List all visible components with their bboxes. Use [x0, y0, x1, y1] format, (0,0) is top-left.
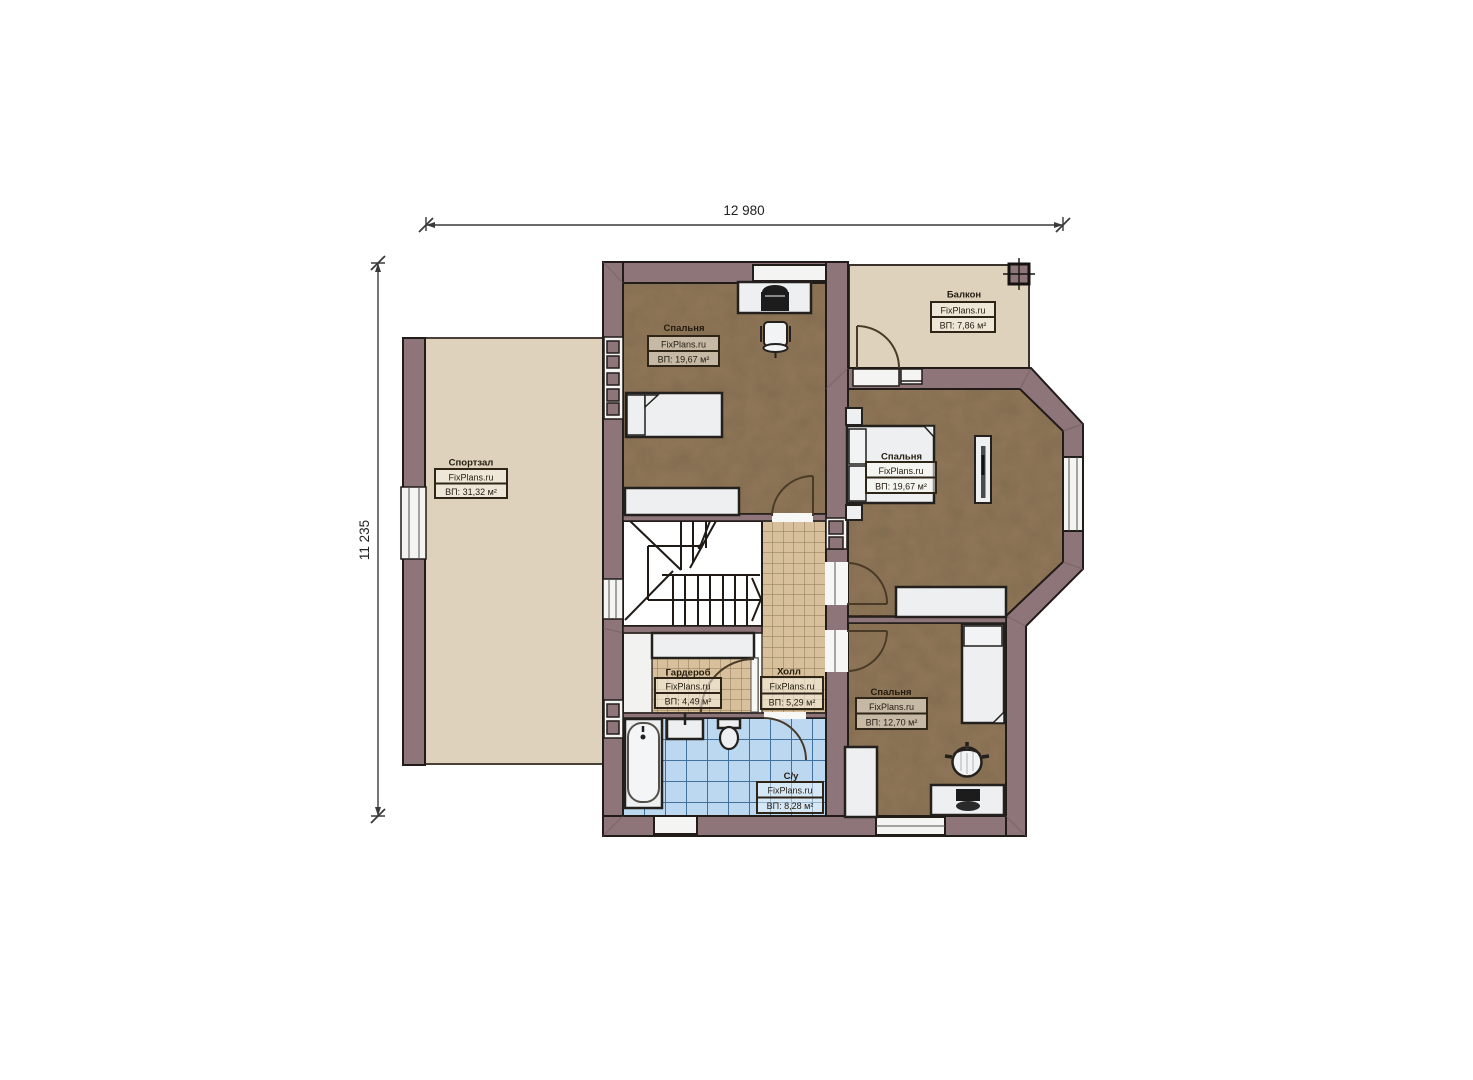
- svg-text:FixPlans.ru: FixPlans.ru: [769, 682, 814, 692]
- svg-text:ВП: 4,49 м²: ВП: 4,49 м²: [665, 697, 712, 707]
- svg-text:12 980: 12 980: [723, 203, 764, 218]
- svg-text:ВП: 19,67 м²: ВП: 19,67 м²: [875, 482, 927, 492]
- svg-text:ВП: 5,29 м²: ВП: 5,29 м²: [769, 698, 816, 708]
- svg-text:Холл: Холл: [777, 667, 801, 678]
- svg-text:ВП: 31,32 м²: ВП: 31,32 м²: [445, 487, 497, 497]
- svg-text:FixPlans.ru: FixPlans.ru: [940, 306, 985, 316]
- svg-text:11 235: 11 235: [357, 520, 372, 560]
- svg-text:FixPlans.ru: FixPlans.ru: [767, 786, 812, 796]
- svg-text:ВП: 12,70 м²: ВП: 12,70 м²: [866, 718, 918, 728]
- svg-text:Балкон: Балкон: [947, 290, 982, 301]
- svg-text:С/у: С/у: [784, 771, 800, 782]
- svg-text:Спортзал: Спортзал: [449, 458, 494, 469]
- svg-text:FixPlans.ru: FixPlans.ru: [665, 682, 710, 692]
- svg-text:Спальня: Спальня: [663, 323, 704, 334]
- svg-text:Спальня: Спальня: [870, 687, 911, 698]
- svg-text:FixPlans.ru: FixPlans.ru: [878, 466, 923, 476]
- svg-text:Гардероб: Гардероб: [666, 668, 711, 679]
- svg-text:FixPlans.ru: FixPlans.ru: [869, 702, 914, 712]
- svg-text:ВП: 8,28 м²: ВП: 8,28 м²: [767, 801, 814, 811]
- svg-text:ВП: 19,67 м²: ВП: 19,67 м²: [658, 355, 710, 365]
- svg-text:FixPlans.ru: FixPlans.ru: [448, 473, 493, 483]
- svg-text:Спальня: Спальня: [881, 452, 922, 463]
- svg-text:ВП: 7,86 м²: ВП: 7,86 м²: [940, 321, 987, 331]
- svg-text:FixPlans.ru: FixPlans.ru: [661, 340, 706, 350]
